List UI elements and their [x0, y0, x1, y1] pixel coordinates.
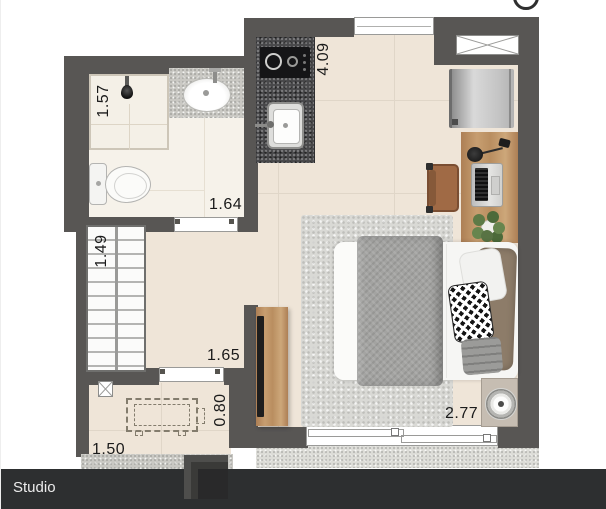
pillow-diamond [447, 280, 495, 343]
dining-chair-dashed [196, 408, 205, 424]
kitchen-faucet-icon [267, 121, 274, 128]
title-bar [1, 469, 606, 509]
balcony-window [306, 425, 498, 446]
wall-bottom-right [498, 427, 539, 448]
wall-top [246, 18, 354, 37]
entry-steps [184, 455, 228, 499]
dim-hall-width: 1.65 [207, 347, 240, 365]
dim-bedroom-width: 2.77 [445, 405, 478, 423]
dim-closet-width: 1.49 [93, 229, 111, 273]
desk-lamp-icon [467, 147, 483, 162]
dim-room-length: 4.09 [315, 37, 333, 81]
table-lamp-icon [485, 388, 517, 420]
floor-plan: 1.64 1.65 1.50 2.77 1.57 1.49 4.09 0.80 … [0, 0, 606, 509]
plan-title: Studio [13, 479, 56, 496]
window-handle-icon [483, 434, 491, 442]
dim-shower-width: 1.57 [95, 79, 113, 123]
dim-entry-table-depth: 0.80 [212, 388, 230, 432]
plant [471, 210, 505, 244]
dining-table-dashed-inner [134, 404, 190, 426]
shaft-xbox-small [98, 381, 113, 397]
bathroom-faucet-icon [209, 68, 221, 72]
window-handle-icon [391, 428, 399, 436]
burner-icon [287, 56, 298, 67]
desk-chair [427, 164, 459, 212]
wall-bottom-center [229, 427, 308, 448]
shower-head-icon [121, 85, 133, 99]
pillow-gray-striped [461, 336, 504, 375]
fridge [449, 69, 514, 128]
bathroom-drain-icon [203, 90, 209, 96]
dim-bathroom-width: 1.64 [209, 196, 242, 214]
north-indicator-icon [513, 0, 539, 10]
wall-bathroom-left [64, 56, 89, 232]
balcony-slab [256, 446, 539, 468]
wall-right [518, 17, 539, 448]
kitchen-window [354, 17, 434, 35]
laptop [471, 163, 503, 207]
bed-blanket [357, 236, 443, 386]
cooktop [260, 47, 310, 78]
wardrobe-rail [115, 227, 118, 370]
tv [257, 316, 264, 417]
burner-icon [265, 53, 282, 70]
shaft-xbox [456, 35, 519, 55]
